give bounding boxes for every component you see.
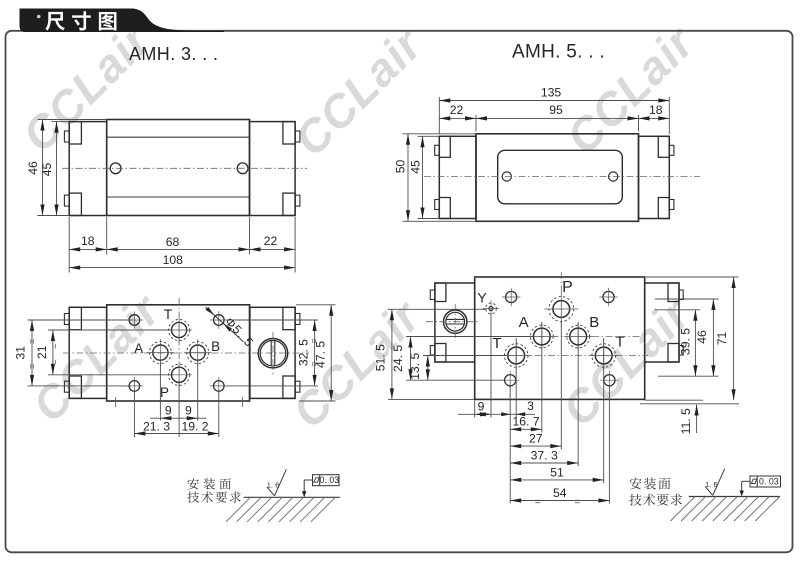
svg-text:19. 2: 19. 2 bbox=[181, 420, 208, 434]
svg-text:9: 9 bbox=[478, 400, 485, 414]
svg-text:24. 5: 24. 5 bbox=[391, 345, 405, 372]
svg-text:0. 03: 0. 03 bbox=[759, 477, 779, 487]
svg-text:T: T bbox=[615, 333, 624, 350]
svg-text:A: A bbox=[519, 314, 529, 331]
svg-text:71: 71 bbox=[715, 332, 729, 346]
svg-text:45: 45 bbox=[40, 163, 54, 177]
svg-text:AMH. 3. . .: AMH. 3. . . bbox=[129, 44, 218, 64]
svg-text:1. 6: 1. 6 bbox=[267, 480, 280, 489]
svg-text:P: P bbox=[160, 385, 169, 400]
svg-text:A: A bbox=[134, 341, 143, 356]
svg-text:27: 27 bbox=[529, 432, 543, 446]
svg-text:51: 51 bbox=[550, 465, 564, 479]
svg-text:18: 18 bbox=[81, 234, 95, 248]
svg-text:108: 108 bbox=[163, 253, 184, 267]
svg-text:68: 68 bbox=[166, 235, 180, 249]
svg-text:39. 5: 39. 5 bbox=[678, 328, 692, 355]
svg-text:13. 5: 13. 5 bbox=[408, 353, 422, 380]
svg-text:B: B bbox=[589, 314, 599, 331]
svg-text:T: T bbox=[492, 335, 501, 352]
svg-text:=: = bbox=[574, 497, 580, 508]
svg-text:22: 22 bbox=[264, 234, 278, 248]
svg-text:21. 3: 21. 3 bbox=[143, 420, 170, 434]
svg-text:9: 9 bbox=[165, 404, 172, 418]
svg-text:=: = bbox=[49, 344, 59, 349]
svg-text:21: 21 bbox=[35, 345, 49, 359]
svg-text:135: 135 bbox=[541, 86, 562, 100]
svg-text:22: 22 bbox=[450, 103, 464, 117]
svg-text:32. 5: 32. 5 bbox=[296, 339, 310, 366]
svg-text:=: = bbox=[535, 497, 541, 508]
svg-text:0. 03: 0. 03 bbox=[320, 475, 340, 485]
svg-text:31: 31 bbox=[14, 346, 28, 360]
svg-text:Y: Y bbox=[477, 290, 487, 306]
svg-text:=: = bbox=[49, 359, 59, 364]
svg-text:AMH. 5. . .: AMH. 5. . . bbox=[512, 42, 605, 63]
svg-text:45: 45 bbox=[408, 160, 422, 174]
svg-text:=: = bbox=[27, 339, 37, 344]
svg-text:9: 9 bbox=[185, 404, 192, 418]
svg-text:54: 54 bbox=[553, 486, 567, 500]
svg-text:=: = bbox=[27, 364, 37, 369]
svg-text:3: 3 bbox=[527, 399, 534, 413]
svg-text:11. 5: 11. 5 bbox=[679, 408, 693, 434]
svg-text:95: 95 bbox=[549, 103, 563, 117]
svg-text:46: 46 bbox=[26, 161, 40, 175]
svg-text:=: = bbox=[309, 338, 319, 343]
svg-text:18: 18 bbox=[649, 103, 663, 117]
svg-text:T: T bbox=[164, 307, 172, 322]
svg-text:B: B bbox=[211, 339, 220, 354]
svg-text:16. 7: 16. 7 bbox=[512, 415, 539, 429]
svg-text:=: = bbox=[309, 361, 319, 366]
svg-text:51. 5: 51. 5 bbox=[374, 344, 388, 371]
svg-text:46: 46 bbox=[695, 330, 709, 344]
svg-text:1. 6: 1. 6 bbox=[705, 480, 718, 489]
svg-text:P: P bbox=[562, 279, 573, 296]
svg-text:50: 50 bbox=[393, 160, 407, 174]
svg-text:37. 3: 37. 3 bbox=[531, 448, 558, 462]
